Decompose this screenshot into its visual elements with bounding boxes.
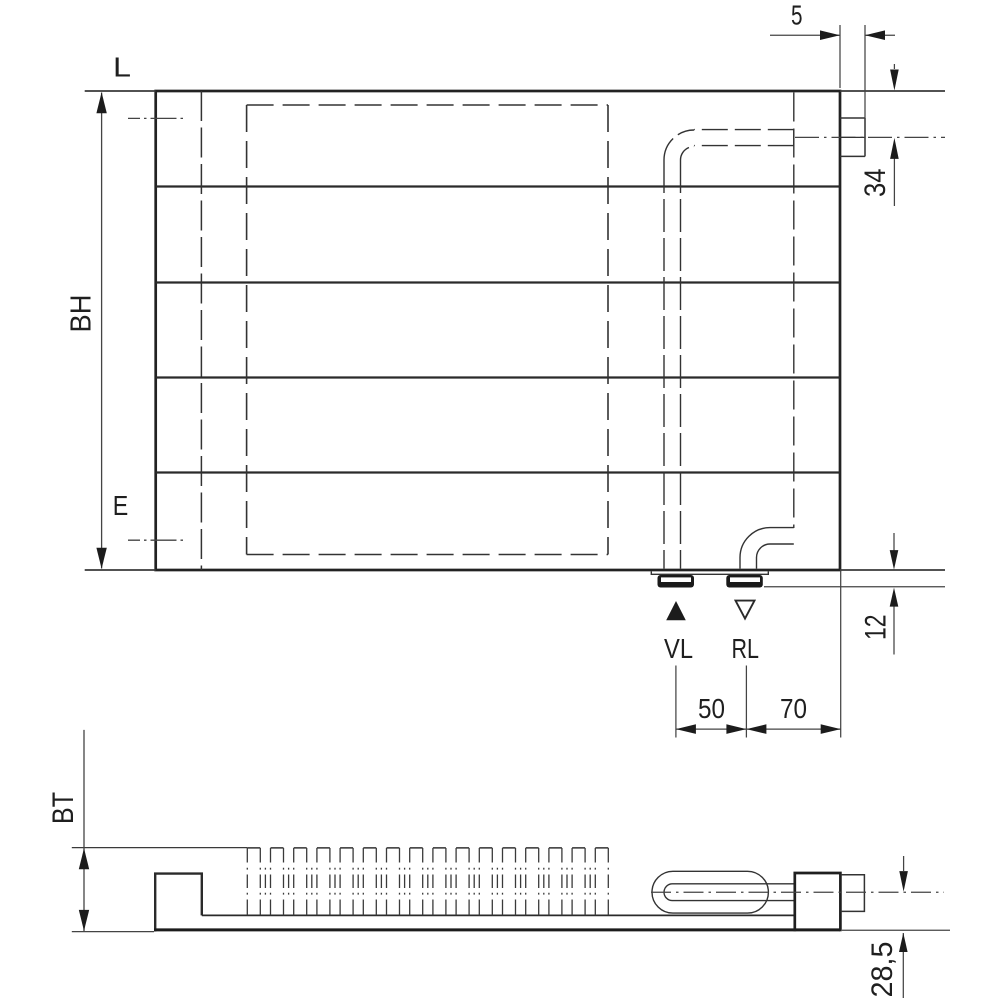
svg-text:BH: BH <box>66 295 98 333</box>
svg-text:12: 12 <box>860 615 893 641</box>
svg-text:5: 5 <box>791 0 803 31</box>
svg-text:RL: RL <box>732 633 760 664</box>
svg-text:70: 70 <box>780 693 807 724</box>
svg-text:L: L <box>113 52 131 83</box>
svg-text:34: 34 <box>859 169 892 198</box>
svg-text:BT: BT <box>47 792 80 824</box>
svg-text:50: 50 <box>698 693 725 724</box>
svg-text:E: E <box>113 490 129 521</box>
svg-text:VL: VL <box>664 633 693 664</box>
svg-text:28,5: 28,5 <box>866 942 899 998</box>
